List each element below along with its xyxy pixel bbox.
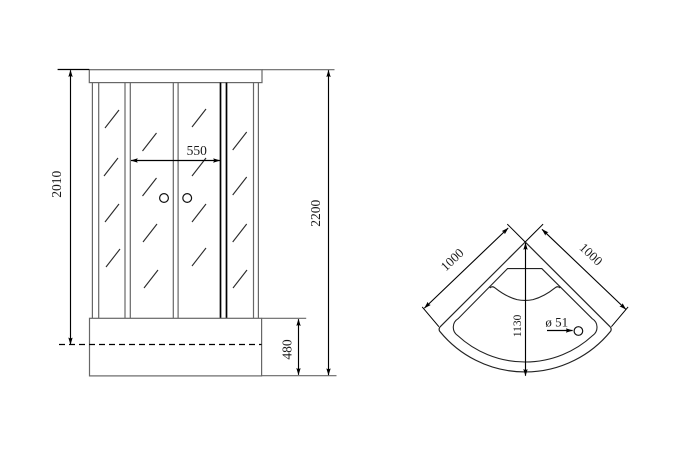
svg-text:2200: 2200 (308, 199, 323, 226)
svg-text:ø 51: ø 51 (545, 315, 568, 330)
svg-text:550: 550 (187, 143, 208, 158)
svg-text:1000: 1000 (438, 245, 467, 274)
svg-text:480: 480 (279, 339, 294, 360)
svg-text:1000: 1000 (577, 240, 606, 269)
svg-text:2010: 2010 (49, 171, 64, 198)
svg-text:1130: 1130 (512, 314, 524, 337)
